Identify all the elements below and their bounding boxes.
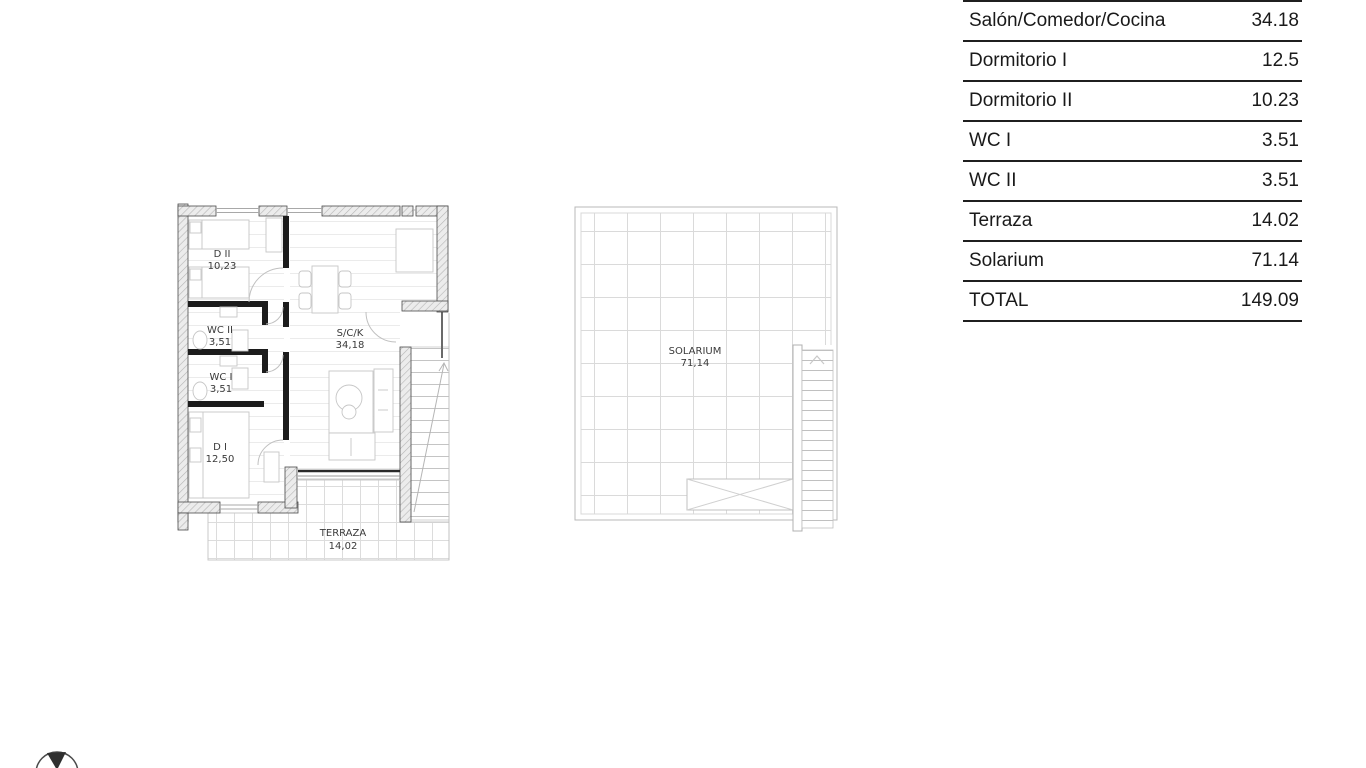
room-label-sck: S/C/K xyxy=(337,328,364,339)
pillow xyxy=(190,418,201,432)
solarium-stairs xyxy=(793,345,833,531)
solarium-plan: SOLARIUM 71,14 xyxy=(575,207,837,531)
area-table-row: WC II 3.51 xyxy=(963,162,1302,202)
dining-table xyxy=(312,266,338,313)
room-area-sck: 34,18 xyxy=(336,340,365,351)
row-value: 34.18 xyxy=(1251,10,1299,32)
row-label: Dormitorio II xyxy=(969,90,1072,112)
chair xyxy=(339,271,351,287)
pillow xyxy=(190,448,201,462)
toilet xyxy=(193,331,207,349)
row-label: WC I xyxy=(969,130,1011,152)
room-label-wc2: WC II xyxy=(207,325,233,336)
row-label: WC II xyxy=(969,170,1017,192)
closet xyxy=(264,452,279,482)
row-value: 12.5 xyxy=(1262,50,1299,72)
room-area-d2: 10,23 xyxy=(208,261,237,272)
stair-stringer xyxy=(793,345,802,531)
room-area-terraza: 14,02 xyxy=(329,541,358,552)
room-label-d1: D I xyxy=(213,442,227,453)
row-label: TOTAL xyxy=(969,290,1028,312)
area-table-row: Salón/Comedor/Cocina 34.18 xyxy=(963,2,1302,42)
row-value: 3.51 xyxy=(1262,130,1299,152)
row-value: 3.51 xyxy=(1262,170,1299,192)
toilet xyxy=(193,382,207,400)
room-area-solarium: 71,14 xyxy=(681,358,710,369)
north-arrow-icon xyxy=(36,752,78,768)
chair xyxy=(299,293,311,309)
area-table-row: Solarium 71.14 xyxy=(963,242,1302,282)
row-label: Solarium xyxy=(969,250,1044,272)
row-label: Dormitorio I xyxy=(969,50,1067,72)
row-value: 10.23 xyxy=(1251,90,1299,112)
solarium-opening xyxy=(687,479,793,510)
room-label-terraza: TERRAZA xyxy=(319,528,367,539)
area-table-row: WC I 3.51 xyxy=(963,122,1302,162)
sink xyxy=(220,356,237,366)
kitchen-cabinets xyxy=(374,369,393,432)
row-value: 149.09 xyxy=(1241,290,1299,312)
shower xyxy=(232,330,248,351)
room-label-d2: D II xyxy=(214,249,231,260)
area-table-row: Dormitorio II 10.23 xyxy=(963,82,1302,122)
room-area-wc1: 3,51 xyxy=(210,384,232,395)
sink xyxy=(220,307,237,317)
area-table-row: Terraza 14.02 xyxy=(963,202,1302,242)
wardrobe xyxy=(266,218,282,252)
room-label-wc1: WC I xyxy=(210,372,233,383)
room-label-solarium: SOLARIUM xyxy=(669,346,722,357)
row-label: Terraza xyxy=(969,210,1032,232)
kitchen-block xyxy=(329,433,375,460)
floorplan-page: D II 10,23 WC II 3,51 WC I 3,51 D I 12,5… xyxy=(0,0,1366,768)
kitchen-counter xyxy=(396,229,433,272)
area-table-row: Dormitorio I 12.5 xyxy=(963,42,1302,82)
row-label: Salón/Comedor/Cocina xyxy=(969,10,1165,32)
pillow xyxy=(190,222,201,233)
area-table-row-total: TOTAL 149.09 xyxy=(963,282,1302,322)
ground-floor-plan: D II 10,23 WC II 3,51 WC I 3,51 D I 12,5… xyxy=(178,204,449,560)
shower xyxy=(232,368,248,389)
room-area-d1: 12,50 xyxy=(206,454,235,465)
chair xyxy=(339,293,351,309)
room-area-wc2: 3,51 xyxy=(209,337,231,348)
chair xyxy=(299,271,311,287)
row-value: 71.14 xyxy=(1251,250,1299,272)
row-value: 14.02 xyxy=(1251,210,1299,232)
pillow xyxy=(190,269,201,280)
area-summary-table: Salón/Comedor/Cocina 34.18 Dormitorio I … xyxy=(963,0,1302,322)
